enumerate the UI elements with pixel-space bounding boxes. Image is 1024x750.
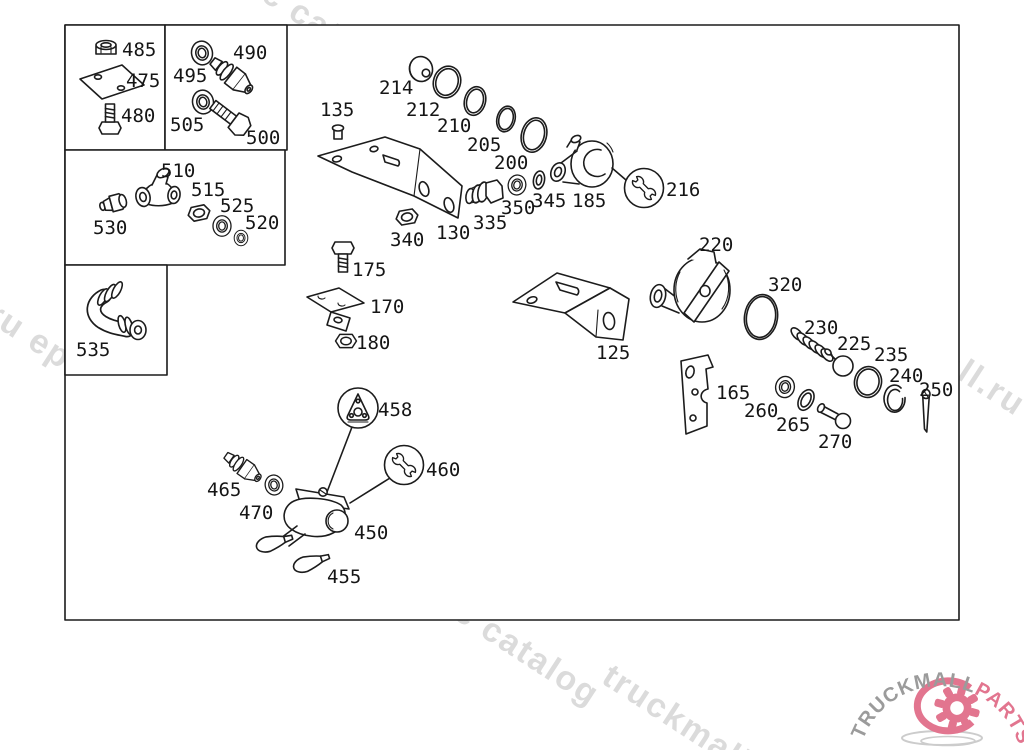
part-label-485: 485	[122, 39, 156, 61]
part-label-130: 130	[436, 222, 470, 244]
truckmallparts-logo: TRUCKMALLPARTS	[847, 669, 1024, 747]
part-label-250: 250	[919, 379, 953, 401]
part-label-520: 520	[245, 212, 279, 234]
part-label-265: 265	[776, 414, 810, 436]
part-label-212: 212	[406, 99, 440, 121]
part-label-505: 505	[170, 114, 204, 136]
part-label-480: 480	[121, 105, 155, 127]
part-label-465: 465	[207, 479, 241, 501]
part-label-225: 225	[837, 333, 871, 355]
part-label-200: 200	[494, 152, 528, 174]
wrench-tool-icon-460	[385, 446, 424, 485]
part-485-locknut	[96, 41, 116, 55]
part-label-335: 335	[473, 212, 507, 234]
part-label-180: 180	[356, 332, 390, 354]
parts-catalog-page: truckmall.ru epc catalog truckmall.ru ep…	[0, 0, 1024, 750]
part-label-170: 170	[370, 296, 404, 318]
part-label-490: 490	[233, 42, 267, 64]
part-label-460: 460	[426, 459, 460, 481]
part-label-475: 475	[126, 70, 160, 92]
plate-tool-icon-458	[338, 388, 378, 428]
part-label-230: 230	[804, 317, 838, 339]
part-label-260: 260	[744, 400, 778, 422]
part-label-216: 216	[666, 179, 700, 201]
part-label-220: 220	[699, 234, 733, 256]
part-525-washer	[213, 216, 231, 237]
logo-text: TRUCKMALLPARTS	[847, 669, 1024, 747]
part-label-320: 320	[768, 274, 802, 296]
part-label-455: 455	[327, 566, 361, 588]
wrench-tool-icon-216	[625, 169, 664, 208]
part-label-500: 500	[246, 127, 280, 149]
part-135-plug	[333, 125, 344, 139]
part-label-458: 458	[378, 399, 412, 421]
part-label-495: 495	[173, 65, 207, 87]
part-180-nut	[336, 334, 357, 347]
part-label-175: 175	[352, 259, 386, 281]
part-label-214: 214	[379, 77, 413, 99]
part-label-125: 125	[596, 342, 630, 364]
part-label-135: 135	[320, 99, 354, 121]
part-label-470: 470	[239, 502, 273, 524]
part-label-185: 185	[572, 190, 606, 212]
part-label-535: 535	[76, 339, 110, 361]
part-label-345: 345	[532, 190, 566, 212]
part-label-530: 530	[93, 217, 127, 239]
parts-diagram: truckmall.ru epc catalog truckmall.ru ep…	[0, 0, 1024, 750]
part-label-270: 270	[818, 431, 852, 453]
part-label-340: 340	[390, 229, 424, 251]
part-label-450: 450	[354, 522, 388, 544]
part-label-235: 235	[874, 344, 908, 366]
